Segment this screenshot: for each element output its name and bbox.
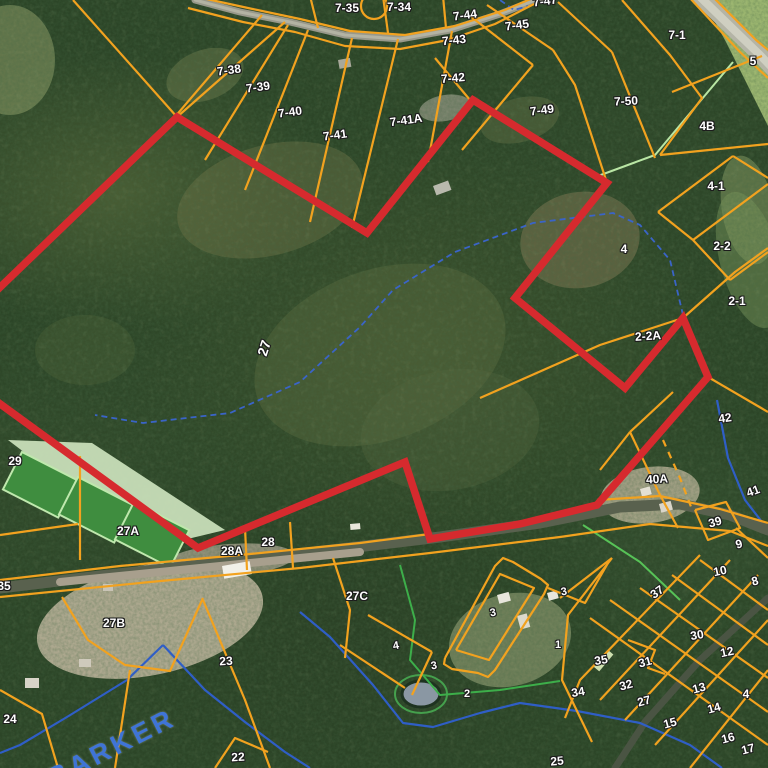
building — [25, 678, 39, 688]
map-canvas — [0, 0, 768, 768]
building — [350, 523, 360, 530]
pond — [402, 681, 440, 707]
building — [79, 659, 91, 667]
parcel-map-viewport[interactable]: 7-357-347-447-457-477-437-427-387-397-40… — [0, 0, 768, 768]
